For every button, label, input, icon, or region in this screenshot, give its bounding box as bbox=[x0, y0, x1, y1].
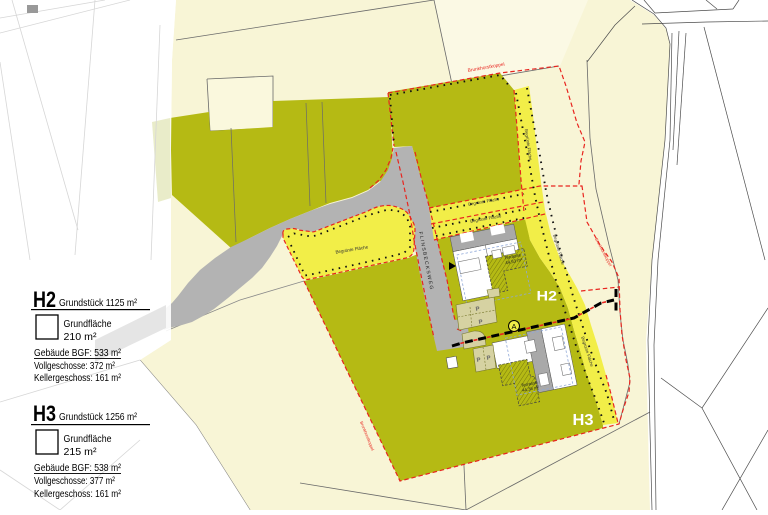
svg-text:Grundfläche: Grundfläche bbox=[64, 318, 112, 330]
svg-text:Gebäude BGF: 533 m²: Gebäude BGF: 533 m² bbox=[34, 347, 121, 359]
svg-text:Grundstück 1125 m²: Grundstück 1125 m² bbox=[59, 297, 137, 309]
svg-text:Gebäude BGF: 538 m²: Gebäude BGF: 538 m² bbox=[34, 462, 121, 474]
svg-text:H2: H2 bbox=[33, 287, 56, 312]
svg-text:Grundstück 1256 m²: Grundstück 1256 m² bbox=[59, 411, 137, 423]
svg-text:210 m²: 210 m² bbox=[64, 331, 97, 343]
svg-text:A: A bbox=[511, 322, 516, 331]
svg-text:Kellergeschoss: 161 m²: Kellergeschoss: 161 m² bbox=[34, 372, 121, 384]
svg-text:Grundfläche: Grundfläche bbox=[64, 433, 112, 445]
svg-text:H2: H2 bbox=[537, 288, 558, 304]
svg-text:H3: H3 bbox=[573, 412, 594, 429]
svg-text:Kellergeschoss: 161 m²: Kellergeschoss: 161 m² bbox=[34, 488, 121, 500]
svg-text:215 m²: 215 m² bbox=[64, 446, 97, 458]
svg-text:H3: H3 bbox=[33, 401, 56, 426]
svg-text:Vollgeschosse: 372 m²: Vollgeschosse: 372 m² bbox=[34, 360, 115, 372]
svg-text:Vollgeschosse: 377 m²: Vollgeschosse: 377 m² bbox=[34, 475, 115, 487]
